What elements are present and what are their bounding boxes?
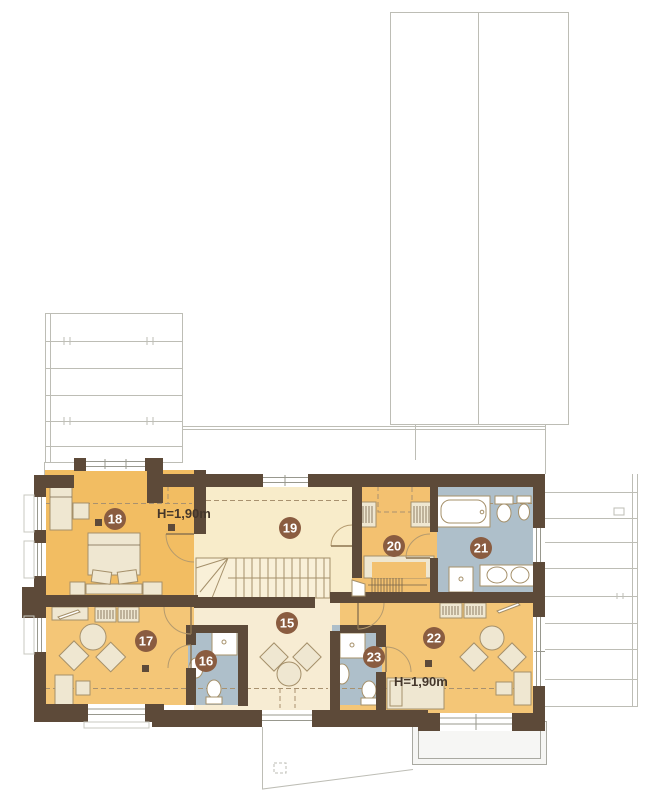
window — [533, 528, 545, 562]
chair — [76, 681, 90, 695]
nightstand — [143, 582, 162, 595]
room-badge-22: 22 — [423, 627, 445, 649]
lower-roof-glyph — [274, 763, 286, 773]
floor-plan-canvas: 15 16 17 18 19 20 21 22 — [0, 0, 651, 800]
left-terrace-rect — [46, 314, 183, 463]
terrace-outline-right — [545, 474, 638, 707]
window — [262, 710, 312, 727]
window — [24, 616, 46, 654]
upper-roof-rect — [391, 13, 569, 425]
closet-notch — [372, 562, 426, 578]
room-number-17: 17 — [139, 634, 153, 649]
window — [533, 617, 545, 686]
shower-drain — [459, 577, 463, 581]
shower-drain — [350, 643, 354, 647]
room-badge-21: 21 — [470, 537, 492, 559]
roof-outline-bottom — [263, 722, 414, 789]
right-terrace-glyph — [614, 508, 624, 515]
room-badge-20: 20 — [383, 535, 405, 557]
cabinet — [514, 672, 531, 705]
roof-outline-upper — [391, 13, 569, 475]
bathtub-basin — [441, 500, 486, 523]
bed — [88, 533, 140, 575]
pillow — [117, 570, 137, 585]
pillow — [91, 570, 111, 585]
toilet-bowl — [362, 681, 376, 699]
left-terrace-ticks — [64, 337, 153, 425]
room-number-19: 19 — [283, 521, 297, 536]
side-table — [496, 682, 512, 695]
round-table — [480, 626, 504, 650]
room-number-18: 18 — [108, 512, 122, 527]
room-badge-17: 17 — [135, 630, 157, 652]
desk — [55, 675, 73, 706]
toilet-tank — [361, 698, 377, 705]
window — [24, 495, 46, 532]
chimney — [147, 458, 163, 503]
height-label-bottom: H=1,90m — [394, 674, 448, 689]
chaise — [50, 487, 72, 530]
round-table — [277, 662, 301, 686]
bidet-tank — [517, 496, 531, 503]
window — [86, 458, 145, 471]
toilet-tank — [206, 697, 222, 704]
bathtub-drain — [480, 510, 484, 514]
window — [263, 474, 308, 487]
lower-roof-slope — [263, 722, 414, 789]
room-badge-18: 18 — [104, 508, 126, 530]
left-terrace-lines — [46, 342, 183, 447]
toilet-bowl — [497, 504, 511, 522]
room-number-23: 23 — [367, 650, 381, 665]
round-table — [80, 624, 106, 650]
room-number-20: 20 — [387, 539, 401, 554]
eaves-line — [183, 427, 546, 430]
toilet-tank — [495, 496, 513, 504]
bed-headboard — [86, 584, 142, 594]
right-terrace-lines — [545, 493, 637, 707]
sink — [487, 567, 507, 583]
room-number-22: 22 — [427, 631, 441, 646]
shower-drain — [222, 640, 226, 644]
room-badge-16: 16 — [195, 650, 217, 672]
height-label-top: H=1,90m — [157, 506, 211, 521]
window — [84, 704, 149, 728]
window — [24, 541, 46, 578]
room-number-21: 21 — [474, 541, 488, 556]
terrace-outline-left — [45, 314, 184, 476]
room-number-15: 15 — [280, 616, 294, 631]
room-badge-23: 23 — [363, 646, 385, 668]
side-table — [73, 503, 89, 519]
sink — [511, 567, 529, 583]
nightstand — [70, 582, 85, 595]
bidet-bowl — [519, 504, 530, 520]
stairs — [196, 558, 330, 598]
floor-plan-svg: 15 16 17 18 19 20 21 22 — [0, 0, 651, 800]
toilet-bowl — [207, 680, 221, 698]
room-number-16: 16 — [199, 654, 213, 669]
room-badge-19: 19 — [279, 517, 301, 539]
balcony-door-window — [440, 713, 512, 731]
room-badge-15: 15 — [276, 612, 298, 634]
